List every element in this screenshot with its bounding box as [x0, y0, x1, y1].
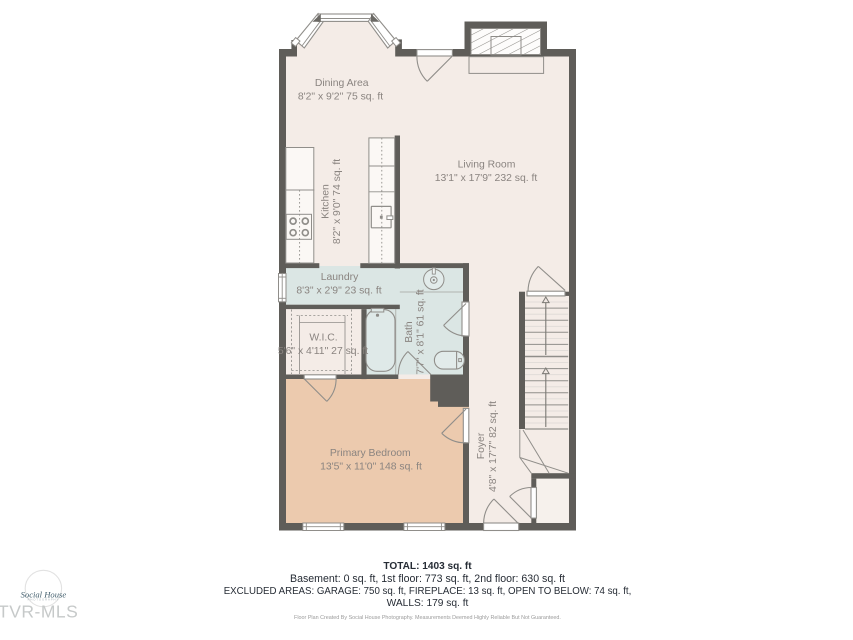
svg-text:W.I.C.: W.I.C. — [309, 333, 337, 344]
svg-text:5'6" x 4'11" 27 sq. ft: 5'6" x 4'11" 27 sq. ft — [278, 346, 368, 357]
svg-text:Foyer: Foyer — [476, 432, 487, 459]
svg-text:8'2" x 9'0" 74 sq. ft: 8'2" x 9'0" 74 sq. ft — [332, 159, 343, 244]
svg-text:Kitchen: Kitchen — [321, 184, 332, 219]
svg-text:4'8" x 17'7" 82 sq. ft: 4'8" x 17'7" 82 sq. ft — [488, 401, 499, 492]
svg-text:Laundry: Laundry — [321, 272, 359, 283]
svg-text:Bath: Bath — [404, 321, 415, 343]
svg-text:13'1" x 17'9" 232 sq. ft: 13'1" x 17'9" 232 sq. ft — [435, 173, 538, 184]
svg-text:Dining Area: Dining Area — [315, 78, 369, 89]
svg-text:8'3" x 2'9" 23 sq. ft: 8'3" x 2'9" 23 sq. ft — [296, 286, 381, 297]
svg-text:7'7" x 8'1" 61 sq. ft: 7'7" x 8'1" 61 sq. ft — [416, 289, 427, 374]
svg-text:TVR-MLS: TVR-MLS — [0, 601, 78, 621]
svg-text:13'5" x 11'0" 148 sq. ft: 13'5" x 11'0" 148 sq. ft — [320, 462, 422, 473]
svg-text:Primary Bedroom: Primary Bedroom — [330, 448, 411, 459]
svg-text:Living Room: Living Room — [458, 160, 516, 171]
svg-text:8'2" x 9'2" 75 sq. ft: 8'2" x 9'2" 75 sq. ft — [298, 92, 383, 103]
